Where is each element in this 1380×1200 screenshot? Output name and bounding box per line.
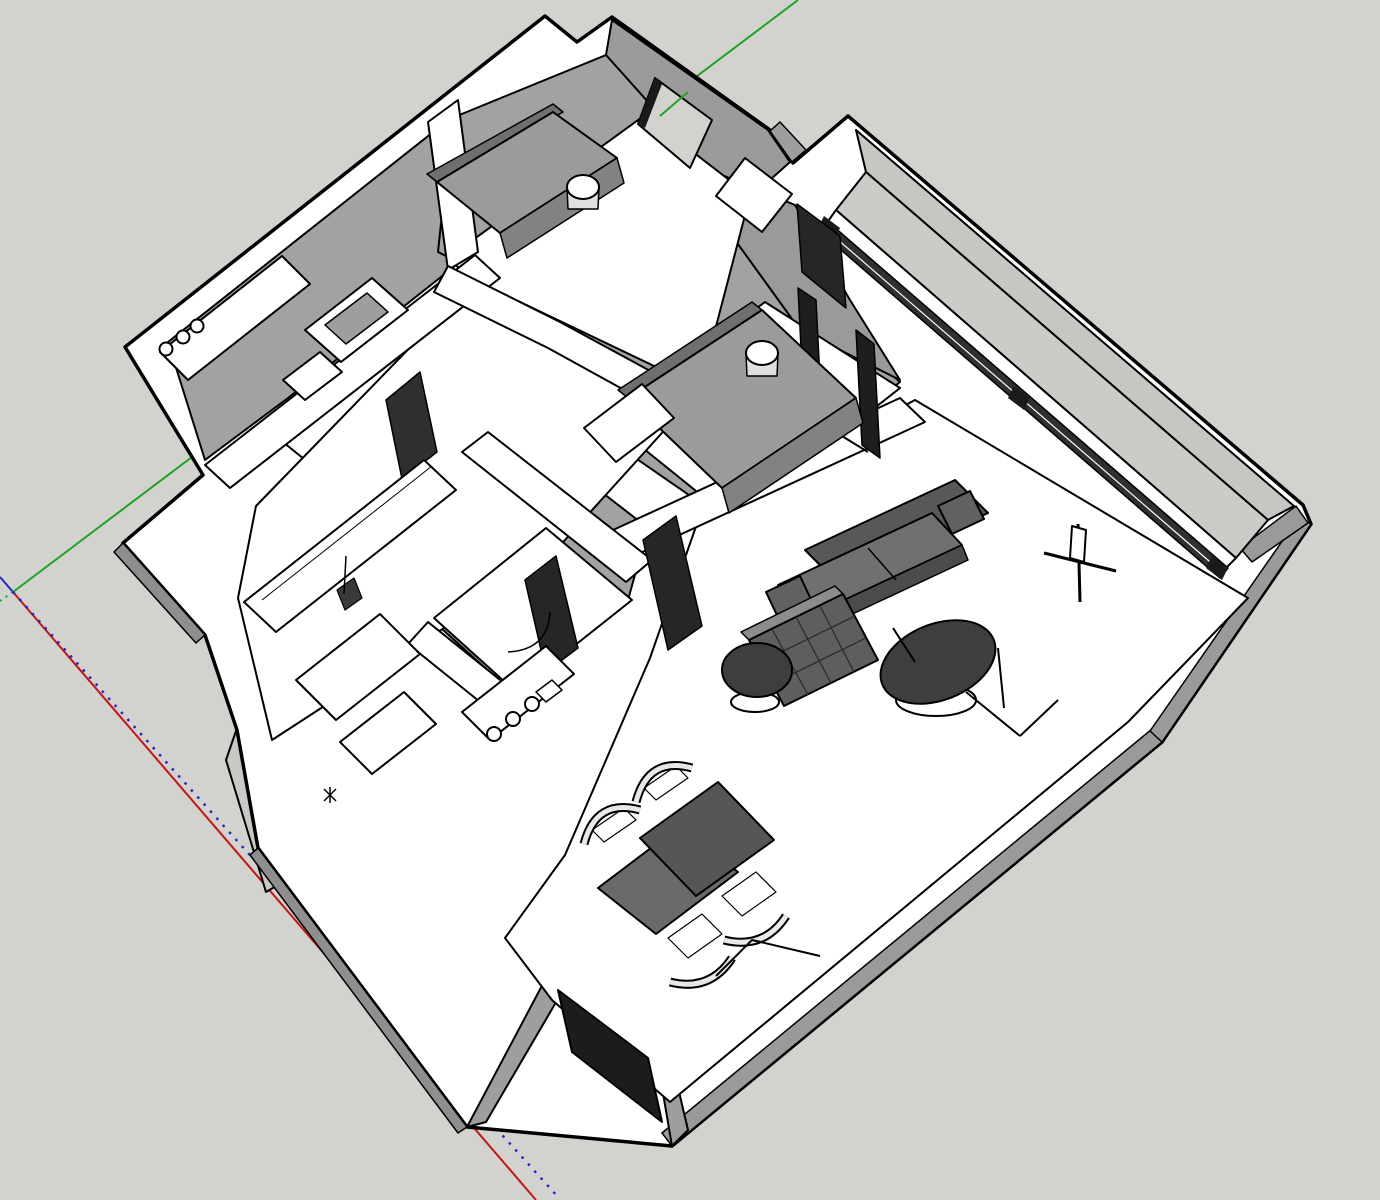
stove-burner-2 [506,712,520,726]
burner-1 [160,343,173,356]
burner-2 [177,331,190,344]
axis-blue-solid [0,577,13,592]
sketchup-3d-viewport[interactable] [0,0,1380,1200]
nightstand1-top [567,175,599,199]
stove-burner-1 [487,727,501,741]
floor-lamp-tube [1070,526,1086,562]
axis-green-dotted [0,592,13,601]
coffee-table-top [722,643,792,697]
burner-3 [191,320,204,333]
stove-burner-3 [525,697,539,711]
floorplan-3d-model [0,0,1380,1200]
nightstand2-top [746,341,778,365]
